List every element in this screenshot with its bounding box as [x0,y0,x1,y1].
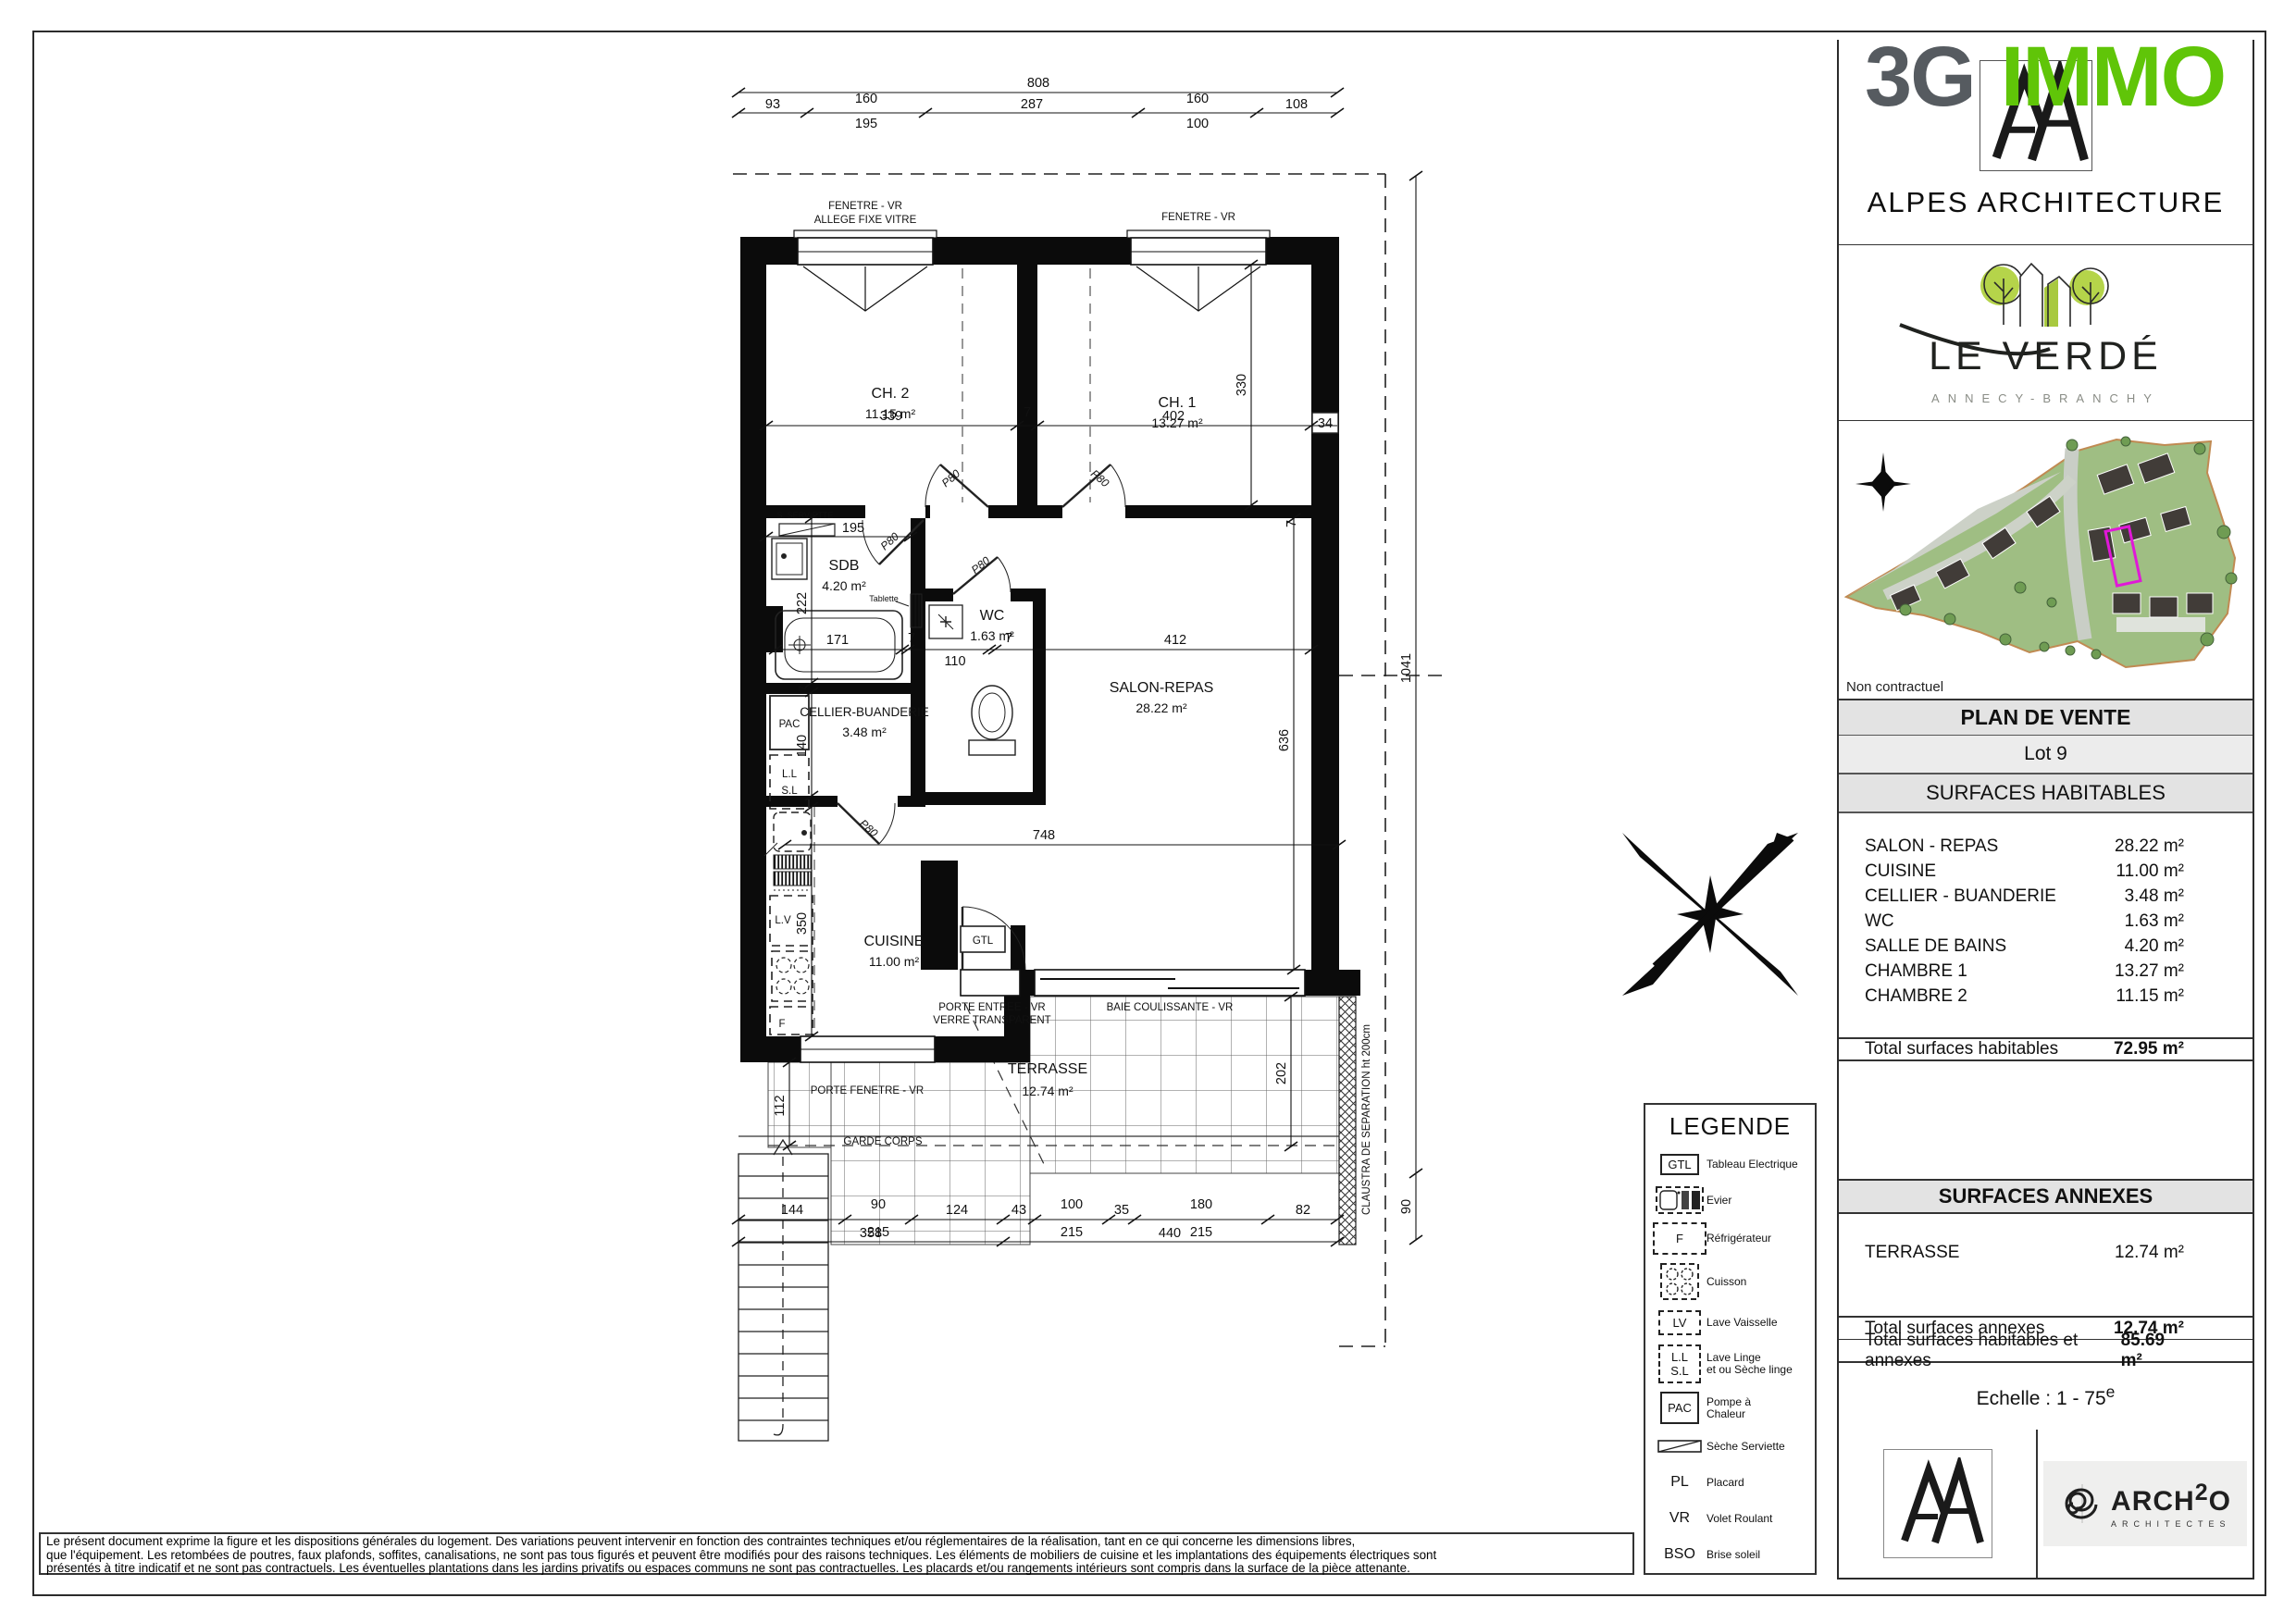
pac-symbol: PAC [1660,1392,1699,1424]
surfaces-annexes-header: SURFACES ANNEXES [1839,1179,2253,1214]
svg-text:180: 180 [1190,1197,1212,1212]
svg-text:Tablette: Tablette [869,594,899,603]
table-row: TERRASSE12.74 m² [1839,1240,2253,1265]
project-name: LE VERDÉ [1839,334,2253,379]
alpes-footer-cell [1839,1430,2038,1578]
svg-text:160: 160 [1186,92,1209,106]
arch2o-text: ARCH [2111,1486,2195,1517]
legend-label: Sèche Serviette [1706,1441,1785,1453]
arch2o-subtitle: ARCHITECTES [2111,1519,2231,1529]
site-plan-section: Non contractuel [1839,421,2253,700]
total-value: 72.95 m² [2114,1039,2184,1059]
svg-text:43: 43 [1011,1203,1026,1218]
svg-text:124: 124 [946,1203,968,1218]
svg-text:WC: WC [980,608,1005,624]
arch2o-logo: ARCH2O ARCHITECTES [2043,1461,2247,1546]
lot-number: Lot 9 [1839,736,2253,774]
surfaces-annexes-title: SURFACES ANNEXES [1839,1184,2253,1208]
info-panel: 3GIMMO ALPES ARCHITECTURE LE VERDÉ ANNEC… [1837,40,2254,1580]
surfaces-habitables-table: SALON - REPAS28.22 m² CUISINE11.00 m² CE… [1839,813,2253,1037]
svg-text:636: 636 [1277,729,1292,751]
scale-note: Echelle : 1 - 75e [1839,1363,2253,1430]
svg-text:160: 160 [855,92,877,106]
legend-item-seche-serviette: Sèche Serviette [1653,1432,1807,1460]
table-row: CUISINE11.00 m² [1839,859,2253,884]
svg-text:171: 171 [826,633,849,648]
legend-label: Tableau Electrique [1706,1158,1798,1171]
legend-label: Evier [1706,1195,1731,1207]
svg-text:110: 110 [944,654,965,669]
total-label: Total surfaces habitables [1865,1039,2058,1059]
legend-label2: et ou Sèche linge [1706,1363,1793,1376]
svg-text:7: 7 [1024,405,1031,420]
scale-text: Echelle : 1 - 75 [1977,1388,2106,1409]
svg-text:3.48 m²: 3.48 m² [842,725,887,739]
svg-text:90: 90 [871,1197,886,1212]
legend-item-evier: Evier [1653,1186,1807,1214]
svg-text:BAIE COULISSANTE - VR: BAIE COULISSANTE - VR [1107,1002,1234,1013]
gtl-symbol: GTL [1660,1154,1698,1175]
svg-text:TERRASSE: TERRASSE [1008,1061,1087,1077]
svg-text:144: 144 [781,1203,803,1218]
plan-de-vente-title: PLAN DE VENTE [1839,700,2253,736]
agency-header: 3GIMMO ALPES ARCHITECTURE [1839,40,2253,245]
table-row: CHAMBRE 211.15 m² [1839,984,2253,1009]
legend-label: Réfrigérateur [1706,1233,1771,1245]
row-value: 11.00 m² [2116,859,2184,884]
svg-text:402: 402 [1162,409,1185,424]
row-label: CELLIER - BUANDERIE [1865,884,2056,909]
logo-immo-text: IMMO [2001,30,2225,124]
svg-text:P80: P80 [878,529,901,552]
svg-text:350: 350 [795,912,810,935]
3g-immo-logo: 3GIMMO [1865,29,2225,126]
site-plan-image [1839,421,2253,700]
row-label: SALLE DE BAINS [1865,934,2006,959]
row-value: 3.48 m² [2125,884,2184,909]
svg-text:SDB: SDB [829,558,860,574]
svg-text:339: 339 [880,409,902,424]
svg-text:140: 140 [795,735,810,757]
svg-text:P80: P80 [1088,467,1112,490]
svg-text:P80: P80 [857,817,880,840]
svg-text:PAC: PAC [779,719,800,730]
svg-text:1041: 1041 [1399,653,1414,683]
fridge-symbol: F [1653,1222,1706,1255]
table-row: CELLIER - BUANDERIE3.48 m² [1839,884,2253,909]
svg-text:7: 7 [1285,520,1299,527]
legend-label: Cuisson [1706,1276,1746,1288]
legend-label: Placard [1706,1477,1744,1489]
svg-text:ALLEGE FIXE VITRE: ALLEGE FIXE VITRE [814,215,917,226]
logo-3g-text: 3G [1865,30,1975,124]
row-label: CHAMBRE 1 [1865,959,1967,984]
svg-text:GTL: GTL [973,935,994,947]
svg-text:FENETRE - VR: FENETRE - VR [828,201,902,212]
arch2o-sup: 2 [2195,1480,2209,1505]
svg-text:100: 100 [1186,117,1209,131]
svg-text:330: 330 [1235,374,1249,396]
svg-text:PORTE ENTREE - VR: PORTE ENTREE - VR [938,1002,1045,1013]
svg-text:195: 195 [855,117,877,131]
legend-box: LEGENDE GTL Tableau Electrique Evier F R… [1644,1103,1817,1575]
svg-text:F: F [778,1019,785,1030]
svg-text:34: 34 [1318,416,1333,431]
svg-text:215: 215 [1061,1225,1083,1240]
spiral-icon [2059,1482,2102,1525]
svg-text:35: 35 [1114,1203,1129,1218]
legend-label2: Chaleur [1706,1407,1745,1420]
sheet: CLAUSTRA DE SEPARATION ht 200cm [0,0,2296,1623]
washer-symbol: L.L [1671,1350,1688,1364]
svg-text:S. SERVIETTE: S. SERVIETTE [777,511,834,520]
svg-text:93: 93 [765,97,780,112]
alpes-architecture-logo-icon [1883,1449,1992,1558]
legend-label: Pompe à [1706,1395,1751,1408]
svg-text:S.L: S.L [781,786,798,797]
row-value: 12.74 m² [2115,1240,2184,1265]
svg-text:FENETRE - VR: FENETRE - VR [1161,212,1235,223]
legend-item-pac: PAC Pompe àChaleur [1653,1392,1807,1424]
row-value: 1.63 m² [2125,909,2184,934]
legend-label: Brise soleil [1706,1549,1760,1561]
legend-label: Lave Linge [1706,1351,1761,1364]
legend-item-frigo: F Réfrigérateur [1653,1222,1807,1255]
project-location: ANNECY-BRANCHY [1839,391,2253,405]
svg-text:7: 7 [798,686,809,691]
footer-logos: ARCH2O ARCHITECTES [1839,1430,2253,1578]
svg-text:412: 412 [1164,633,1186,648]
svg-text:28.22 m²: 28.22 m² [1136,700,1187,715]
row-value: 13.27 m² [2115,959,2184,984]
svg-text:L.L: L.L [782,769,798,780]
legend-item-lv: LV Lave Vaisselle [1653,1308,1807,1336]
project-logo-section: LE VERDÉ ANNECY-BRANCHY [1839,245,2253,421]
svg-text:CH. 2: CH. 2 [872,386,910,402]
spacer [1839,1061,2253,1179]
legend-item-gtl: GTL Tableau Electrique [1653,1150,1807,1178]
svg-text:202: 202 [1274,1062,1289,1084]
svg-text:L.V: L.V [775,915,791,926]
arch2o-footer-cell: ARCH2O ARCHITECTES [2038,1430,2253,1578]
total-habitables-row: Total surfaces habitables 72.95 m² [1839,1037,2253,1061]
row-value: 11.15 m² [2116,984,2184,1009]
compass-icon [1622,833,1798,996]
svg-text:808: 808 [1027,76,1049,91]
legend-item-bso: BSO Brise soleil [1653,1541,1807,1568]
stairs [738,1140,828,1441]
legend-item-pl: PL Placard [1653,1468,1807,1496]
row-label: CUISINE [1865,859,1936,884]
svg-text:P80: P80 [939,467,963,490]
legend-item-cuisson: Cuisson [1653,1263,1807,1300]
svg-text:100: 100 [1061,1197,1083,1212]
hob-icon [1660,1263,1699,1300]
legend-item-llsl: L.LS.L Lave Lingeet ou Sèche linge [1653,1344,1807,1383]
svg-text:82: 82 [1296,1203,1310,1218]
svg-text:748: 748 [1033,828,1055,843]
row-label: SALON - REPAS [1865,834,1998,859]
table-row: SALLE DE BAINS4.20 m² [1839,934,2253,959]
plan-de-vente-label: PLAN DE VENTE [1839,705,2253,730]
placard-symbol: PL [1670,1474,1689,1491]
dishwasher-symbol: LV [1658,1310,1701,1335]
claustra-label: CLAUSTRA DE SEPARATION ht 200cm [1361,1024,1372,1215]
svg-text:CUISINE: CUISINE [864,934,925,949]
svg-text:358: 358 [860,1226,882,1241]
svg-text:GARDE CORPS: GARDE CORPS [844,1136,923,1147]
table-row: WC1.63 m² [1839,909,2253,934]
svg-text:222: 222 [795,592,810,614]
row-label: CHAMBRE 2 [1865,984,1967,1009]
legend-label: Lave Vaisselle [1706,1317,1778,1329]
row-value: 28.22 m² [2115,834,2184,859]
svg-text:287: 287 [1021,97,1043,112]
agency-name: ALPES ARCHITECTURE [1839,186,2253,219]
svg-text:195: 195 [842,521,864,536]
svg-text:SALON-REPAS: SALON-REPAS [1110,680,1214,696]
non-contractuel-note: Non contractuel [1846,679,1943,695]
table-row: SALON - REPAS28.22 m² [1839,834,2253,859]
grand-total-row: Total surfaces habitables et annexes 85.… [1839,1339,2253,1363]
svg-text:90: 90 [1399,1199,1414,1214]
legend-item-vr: VR Volet Roulant [1653,1505,1807,1532]
svg-text:7: 7 [908,631,915,646]
bso-symbol: BSO [1664,1546,1695,1563]
svg-text:CELLIER-BUANDERIE: CELLIER-BUANDERIE [800,705,929,719]
surfaces-annexes-table: TERRASSE12.74 m² [1839,1214,2253,1316]
scale-sup: e [2106,1382,2116,1401]
dryer-symbol: S.L [1670,1364,1689,1378]
svg-text:4.20 m²: 4.20 m² [822,578,866,593]
lot-label: Lot 9 [1839,743,2253,765]
svg-text:215: 215 [1190,1225,1212,1240]
row-label: TERRASSE [1865,1240,1959,1265]
legend-title: LEGENDE [1653,1112,1807,1141]
arch2o-text-end: O [2209,1486,2231,1517]
svg-text:7: 7 [1005,631,1012,646]
legend-label: Volet Roulant [1706,1513,1772,1525]
svg-text:440: 440 [1159,1226,1181,1241]
svg-text:11.00 m²: 11.00 m² [869,954,920,969]
volet-symbol: VR [1669,1510,1690,1527]
site-compass-icon [1855,452,1911,512]
row-value: 4.20 m² [2125,934,2184,959]
svg-text:VERRE TRANSPARENT: VERRE TRANSPARENT [933,1015,1050,1026]
row-label: WC [1865,909,1894,934]
towel-rail-icon [1657,1440,1702,1453]
sink-icon [1656,1186,1704,1214]
surfaces-habitables-header: SURFACES HABITABLES [1839,774,2253,813]
svg-text:112: 112 [773,1095,788,1116]
table-row: CHAMBRE 113.27 m² [1839,959,2253,984]
claustra: CLAUSTRA DE SEPARATION ht 200cm [1339,997,1372,1245]
svg-text:P80: P80 [969,554,993,576]
svg-text:12.74 m²: 12.74 m² [1022,1084,1074,1098]
surfaces-habitables-title: SURFACES HABITABLES [1839,781,2253,805]
svg-text:108: 108 [1285,97,1308,112]
svg-text:PORTE FENETRE - VR: PORTE FENETRE - VR [811,1085,924,1096]
